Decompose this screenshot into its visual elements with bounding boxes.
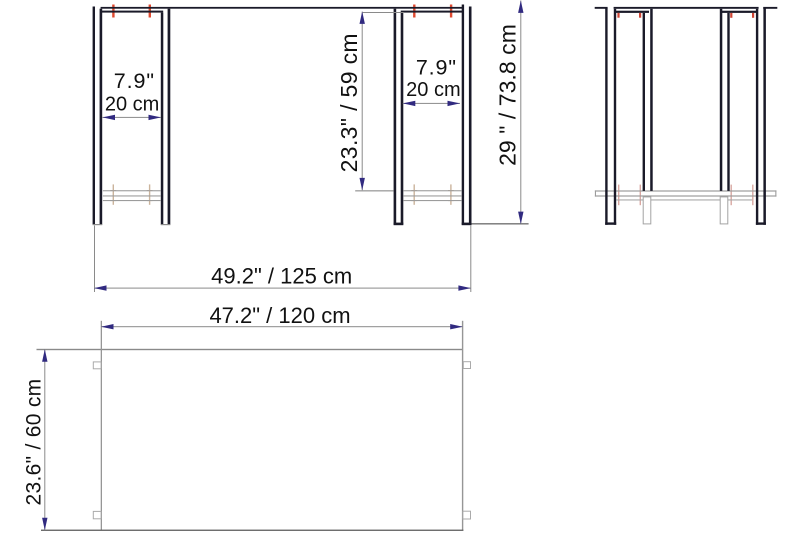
svg-text:49.2" / 125 cm: 49.2" / 125 cm — [211, 264, 352, 289]
svg-text:23.6" / 60 cm: 23.6" / 60 cm — [23, 379, 46, 506]
svg-text:29 " / 73.8 cm: 29 " / 73.8 cm — [495, 24, 521, 166]
svg-text:20 cm: 20 cm — [406, 79, 460, 101]
svg-text:7.9": 7.9" — [114, 69, 155, 93]
svg-text:7.9": 7.9" — [416, 55, 457, 79]
svg-text:20 cm: 20 cm — [105, 93, 159, 115]
svg-text:47.2" / 120 cm: 47.2" / 120 cm — [209, 303, 350, 328]
svg-text:23.3" / 59 cm: 23.3" / 59 cm — [336, 33, 362, 172]
